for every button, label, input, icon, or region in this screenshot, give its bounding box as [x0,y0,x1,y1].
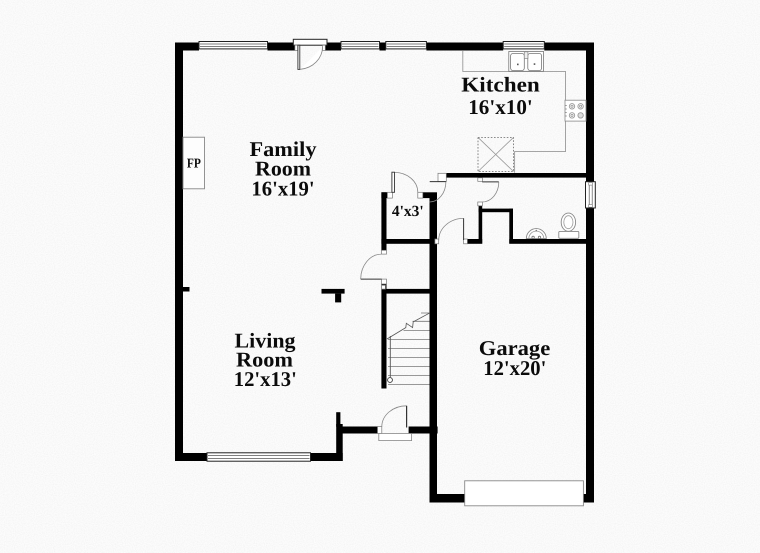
svg-text:12'x20': 12'x20' [483,356,546,380]
svg-text:4'x3': 4'x3' [392,203,424,220]
svg-text:16'x10': 16'x10' [468,95,533,119]
svg-text:Kitchen: Kitchen [461,73,540,97]
svg-text:12'x13': 12'x13' [234,367,297,391]
svg-text:FP: FP [187,156,201,171]
svg-text:16'x19': 16'x19' [251,176,314,200]
